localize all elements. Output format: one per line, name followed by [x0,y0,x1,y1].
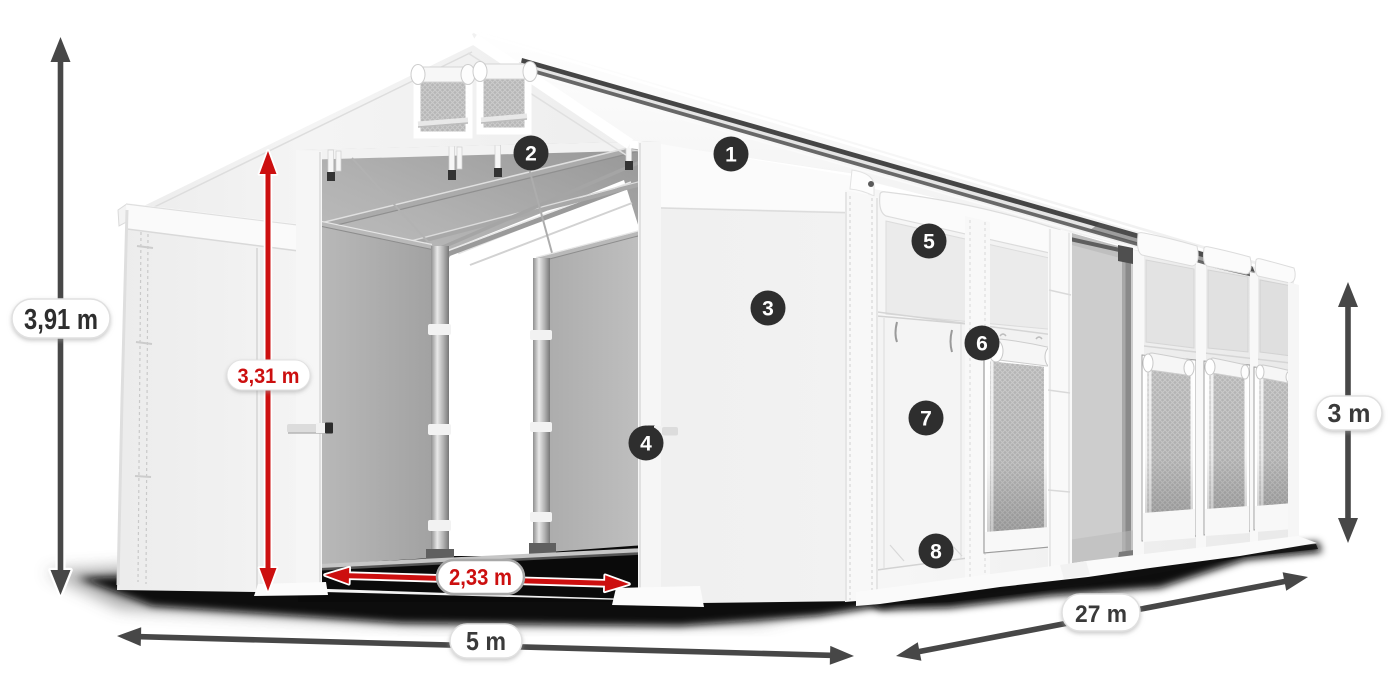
svg-text:2,33 m: 2,33 m [449,564,512,590]
svg-text:27 m: 27 m [1075,601,1127,628]
svg-text:3: 3 [762,298,774,321]
svg-text:4: 4 [640,433,652,456]
svg-text:7: 7 [920,408,932,431]
svg-text:5 m: 5 m [466,626,506,656]
svg-text:3,91 m: 3,91 m [24,304,98,336]
svg-text:6: 6 [976,333,988,356]
svg-text:2: 2 [525,143,537,166]
svg-text:3 m: 3 m [1328,398,1371,428]
svg-text:5: 5 [923,231,935,254]
svg-text:3,31 m: 3,31 m [238,364,300,388]
svg-text:1: 1 [725,144,737,167]
svg-text:8: 8 [930,541,942,564]
